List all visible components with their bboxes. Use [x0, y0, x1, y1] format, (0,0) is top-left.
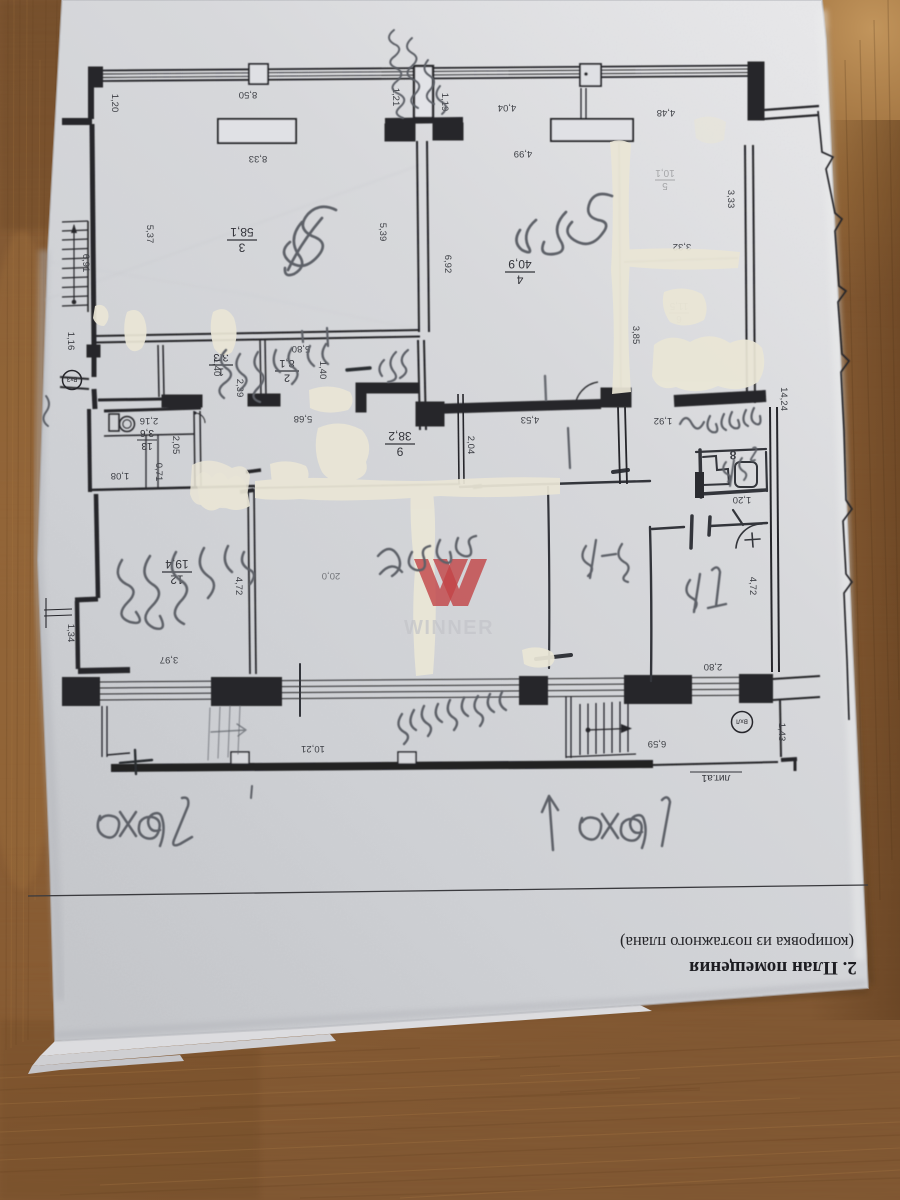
svg-text:1,21: 1,21: [390, 88, 401, 107]
svg-text:1,20: 1,20: [733, 494, 752, 505]
svg-text:5: 5: [662, 180, 668, 191]
svg-text:1,92: 1,92: [654, 415, 673, 426]
svg-text:4,48: 4,48: [657, 107, 676, 118]
svg-text:20,0: 20,0: [322, 570, 341, 581]
svg-text:2,16: 2,16: [140, 415, 159, 426]
svg-text:1: 1: [218, 366, 224, 378]
svg-text:4,72: 4,72: [233, 577, 244, 596]
svg-text:5,39: 5,39: [377, 223, 388, 242]
svg-text:2. План помещения: 2. План помещения: [689, 957, 857, 978]
svg-text:19,4: 19,4: [165, 557, 189, 571]
svg-text:38,2: 38,2: [388, 429, 412, 443]
svg-text:ВхЛ: ВхЛ: [736, 718, 748, 725]
svg-text:ВхЗ: ВхЗ: [66, 376, 77, 382]
svg-text:4: 4: [516, 273, 523, 287]
svg-text:2,05: 2,05: [170, 436, 181, 455]
svg-text:8,50: 8,50: [239, 89, 258, 100]
svg-text:8: 8: [729, 448, 736, 462]
svg-text:14,24: 14,24: [778, 387, 789, 411]
svg-text:3,97: 3,97: [160, 654, 179, 665]
svg-text:1,08: 1,08: [111, 470, 130, 481]
svg-text:12: 12: [170, 573, 184, 587]
svg-text:4,53: 4,53: [521, 414, 540, 425]
svg-text:4,04: 4,04: [498, 102, 517, 113]
svg-text:3,85: 3,85: [630, 326, 641, 345]
svg-text:10,1: 10,1: [655, 167, 675, 178]
svg-text:1,16: 1,16: [65, 332, 76, 351]
svg-text:лит.а1: лит.а1: [701, 772, 730, 783]
svg-text:6,59: 6,59: [648, 738, 667, 749]
svg-text:2,04: 2,04: [465, 436, 476, 455]
svg-text:3,33: 3,33: [725, 190, 736, 209]
svg-text:10,21: 10,21: [301, 743, 325, 754]
svg-text:0,71: 0,71: [153, 463, 164, 482]
svg-text:2,80: 2,80: [704, 661, 723, 672]
svg-text:2: 2: [284, 372, 290, 384]
svg-text:13: 13: [141, 440, 153, 451]
svg-text:(копировка из поэтажного плана: (копировка из поэтажного плана): [620, 933, 854, 952]
svg-text:1,20: 1,20: [109, 94, 120, 113]
svg-text:WINNER: WINNER: [404, 617, 494, 639]
svg-text:5,68: 5,68: [294, 413, 313, 424]
svg-text:4,72: 4,72: [747, 577, 758, 596]
svg-text:6,91: 6,91: [80, 254, 91, 273]
svg-text:8,33: 8,33: [249, 153, 268, 164]
svg-text:58,1: 58,1: [230, 225, 254, 239]
svg-text:40,9: 40,9: [508, 257, 532, 271]
svg-text:3: 3: [238, 241, 245, 255]
svg-text:1,34: 1,34: [65, 624, 76, 643]
svg-text:1,43: 1,43: [776, 723, 787, 742]
svg-text:3,6: 3,6: [140, 427, 154, 438]
svg-text:9: 9: [396, 445, 403, 459]
svg-text:6,92: 6,92: [442, 255, 453, 274]
svg-text:4,99: 4,99: [514, 148, 533, 159]
svg-text:5,37: 5,37: [144, 225, 155, 244]
